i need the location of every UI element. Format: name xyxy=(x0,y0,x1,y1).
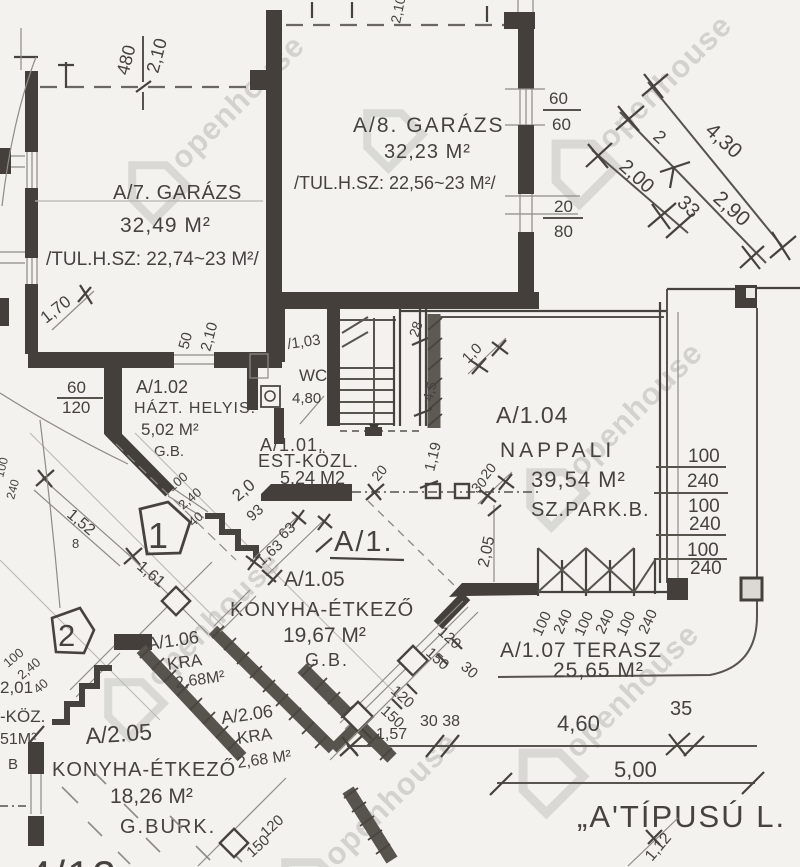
svg-text:19,67 M²: 19,67 M² xyxy=(283,624,366,647)
svg-text:32,49 M²: 32,49 M² xyxy=(120,214,211,237)
svg-text:80: 80 xyxy=(554,222,573,241)
svg-text:KONYHA-ÉTKEZŐ: KONYHA-ÉTKEZŐ xyxy=(52,758,236,781)
svg-text:-KÖZ.: -KÖZ. xyxy=(0,707,45,726)
svg-text:240: 240 xyxy=(690,558,722,579)
svg-text:30 38: 30 38 xyxy=(420,713,460,730)
svg-text:39,54 M²: 39,54 M² xyxy=(531,467,626,492)
svg-text:25,65 M²: 25,65 M² xyxy=(553,659,644,682)
svg-text:B: B xyxy=(8,756,18,773)
svg-text:NAPPALI: NAPPALI xyxy=(500,439,615,462)
svg-text:18,26 M²: 18,26 M² xyxy=(110,785,193,808)
svg-text:2: 2 xyxy=(58,618,75,653)
svg-text:32,23 M²: 32,23 M² xyxy=(384,141,471,163)
svg-text:4,80: 4,80 xyxy=(292,390,321,407)
svg-text:2,01: 2,01 xyxy=(0,678,33,697)
svg-text:/TUL.H.SZ: 22,56~23 M²/: /TUL.H.SZ: 22,56~23 M²/ xyxy=(294,173,496,193)
svg-text:A/1.: A/1. xyxy=(334,526,394,558)
svg-text:5,02 M²: 5,02 M² xyxy=(141,420,199,439)
svg-text:A/2.05: A/2.05 xyxy=(85,718,153,749)
svg-text:A/7. GARÁZS: A/7. GARÁZS xyxy=(113,181,242,204)
svg-text:KONYHA-ÉTKEZŐ: KONYHA-ÉTKEZŐ xyxy=(230,598,414,621)
svg-text:5,00: 5,00 xyxy=(614,757,657,782)
svg-text:100: 100 xyxy=(688,446,720,467)
svg-text:SZ.PARK.B.: SZ.PARK.B. xyxy=(531,499,650,521)
svg-text:5,24 M2: 5,24 M2 xyxy=(280,468,345,488)
svg-text:WC: WC xyxy=(299,366,327,385)
svg-text:/TUL.H.SZ: 22,74~23 M²/: /TUL.H.SZ: 22,74~23 M²/ xyxy=(46,249,259,270)
svg-text:4/12: 4/12 xyxy=(28,852,118,867)
svg-text:4,60: 4,60 xyxy=(557,711,600,736)
svg-text:20: 20 xyxy=(554,197,573,216)
svg-text:120: 120 xyxy=(62,398,90,417)
svg-text:HÁZT. HELYIS.: HÁZT. HELYIS. xyxy=(134,398,256,417)
svg-text:60: 60 xyxy=(549,89,568,108)
svg-text:1: 1 xyxy=(148,515,168,556)
svg-text:G.BURK.: G.BURK. xyxy=(120,816,216,838)
svg-text:60: 60 xyxy=(67,378,86,397)
svg-text:A/8. GARÁZS: A/8. GARÁZS xyxy=(353,114,505,137)
svg-text:A/1.02: A/1.02 xyxy=(136,377,188,397)
svg-text:A/1.04: A/1.04 xyxy=(496,402,569,428)
svg-text:240: 240 xyxy=(689,514,721,535)
svg-text:8: 8 xyxy=(72,536,79,551)
svg-text:1,57: 1,57 xyxy=(376,726,407,743)
svg-text:A/1.05: A/1.05 xyxy=(284,568,345,591)
svg-text:35: 35 xyxy=(670,698,692,720)
svg-text:G.B.: G.B. xyxy=(154,443,184,460)
svg-text:240: 240 xyxy=(687,471,719,492)
svg-text:60: 60 xyxy=(552,115,571,134)
svg-text:„A'TÍPUSÚ L.: „A'TÍPUSÚ L. xyxy=(577,799,786,834)
